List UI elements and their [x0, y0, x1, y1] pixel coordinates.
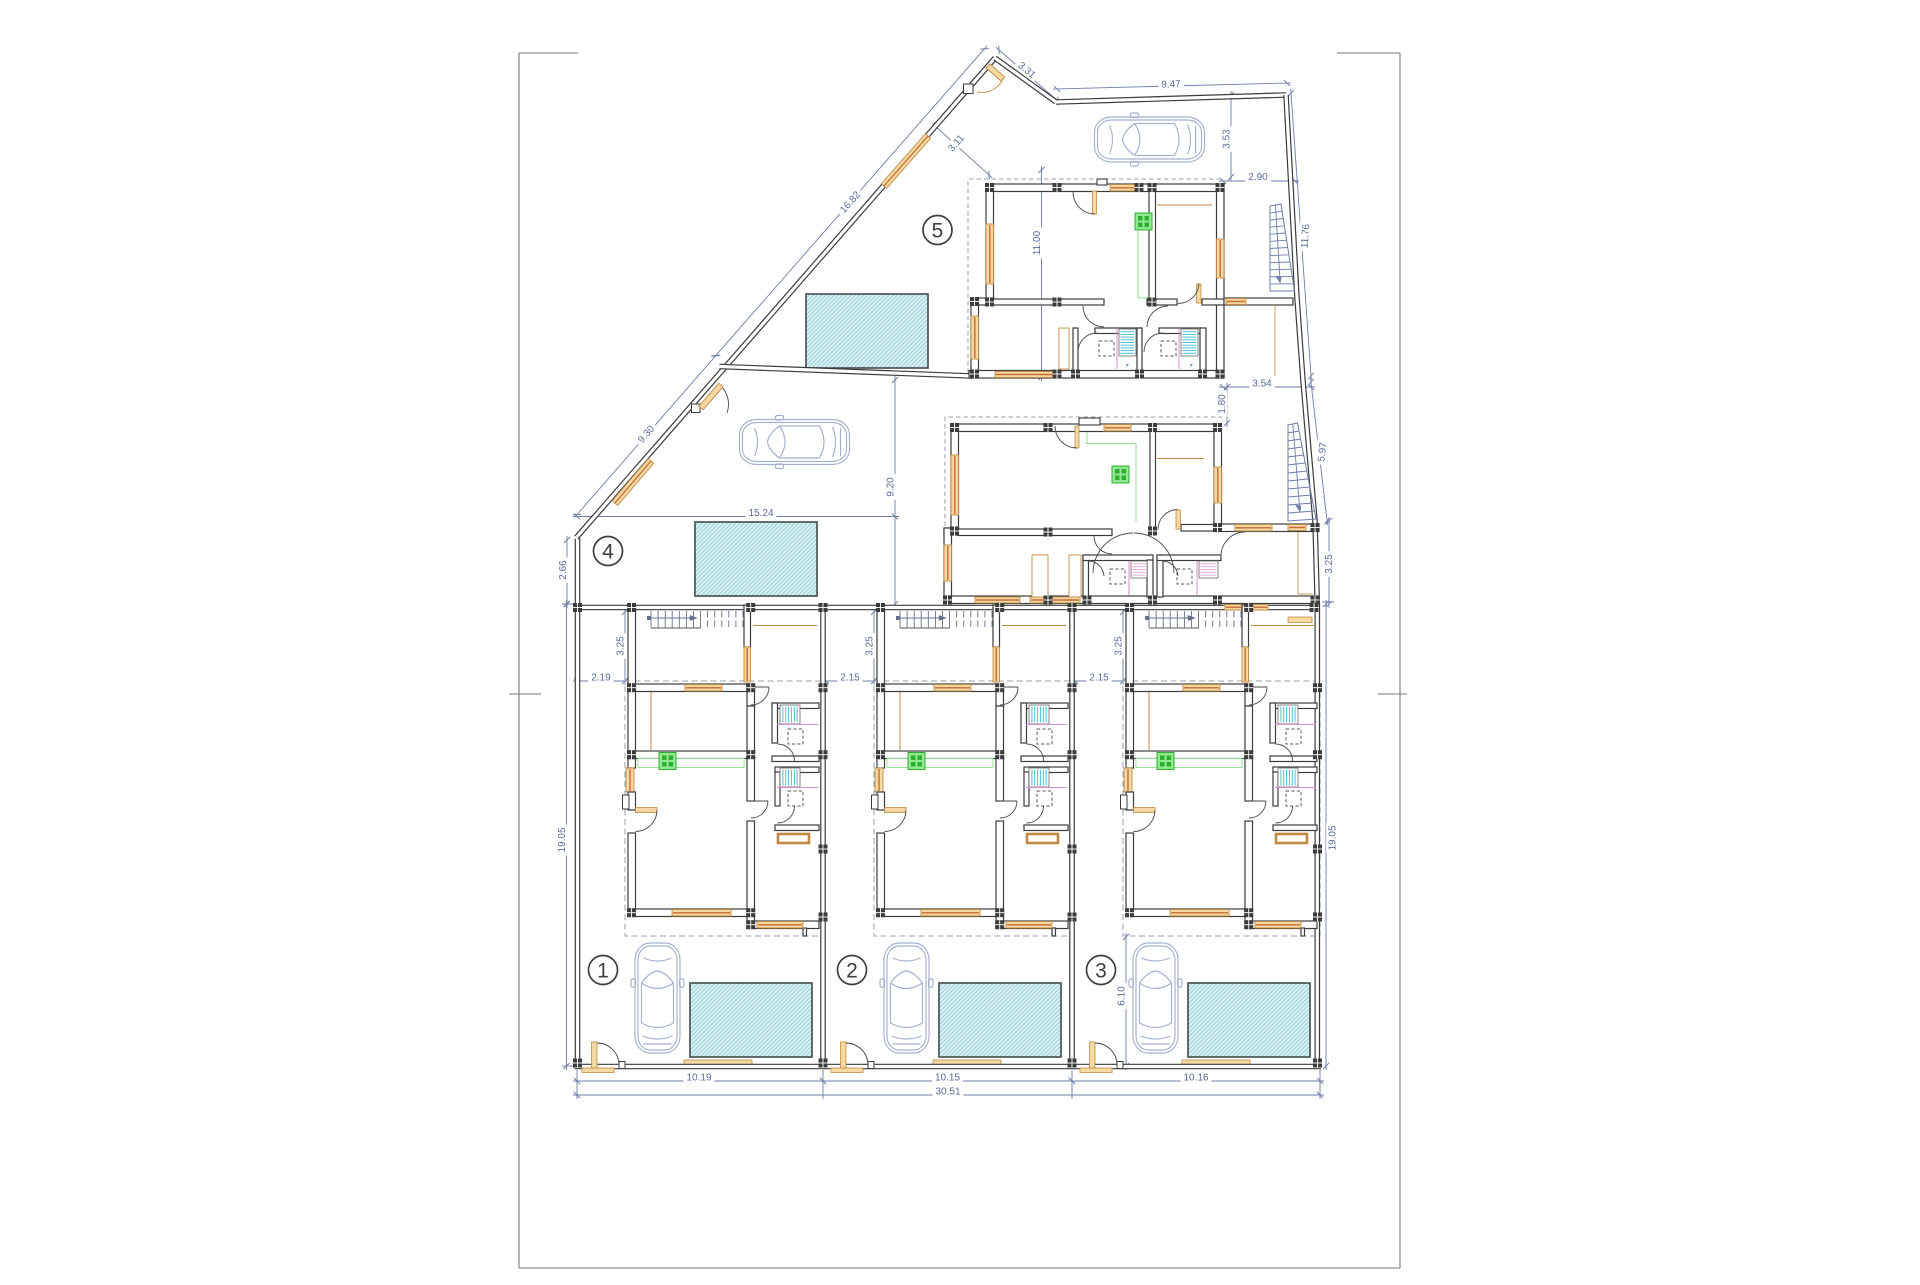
- svg-text:2.15: 2.15: [840, 672, 860, 683]
- svg-text:2: 2: [846, 960, 858, 983]
- svg-text:3.25: 3.25: [1324, 554, 1335, 574]
- svg-text:15.24: 15.24: [748, 508, 773, 519]
- svg-text:2.19: 2.19: [591, 672, 611, 683]
- svg-text:1: 1: [597, 960, 609, 983]
- svg-text:3.25: 3.25: [615, 636, 626, 656]
- svg-text:11.00: 11.00: [1032, 230, 1043, 255]
- svg-text:10.15: 10.15: [935, 1072, 960, 1083]
- svg-text:11.76: 11.76: [1300, 223, 1313, 248]
- svg-text:3.54: 3.54: [1252, 378, 1272, 389]
- svg-text:19.05: 19.05: [557, 827, 568, 852]
- svg-text:2.90: 2.90: [1248, 172, 1268, 183]
- svg-text:3.53: 3.53: [1221, 129, 1232, 149]
- svg-text:10.19: 10.19: [686, 1072, 711, 1083]
- svg-text:19.05: 19.05: [1327, 825, 1338, 850]
- svg-text:3: 3: [1095, 960, 1107, 983]
- svg-text:6.10: 6.10: [1116, 986, 1127, 1006]
- svg-text:4: 4: [602, 541, 614, 564]
- svg-text:2.66: 2.66: [558, 560, 569, 580]
- svg-text:10.16: 10.16: [1183, 1072, 1208, 1083]
- svg-text:1.80: 1.80: [1217, 394, 1228, 414]
- svg-text:5.97: 5.97: [1316, 441, 1329, 462]
- svg-text:9.47: 9.47: [1161, 79, 1181, 91]
- svg-text:30.51: 30.51: [935, 1086, 960, 1097]
- svg-text:5: 5: [932, 220, 944, 243]
- svg-text:3.25: 3.25: [1113, 636, 1124, 656]
- svg-text:3.25: 3.25: [864, 636, 875, 656]
- svg-text:2.15: 2.15: [1089, 672, 1109, 683]
- svg-text:9.20: 9.20: [885, 477, 896, 497]
